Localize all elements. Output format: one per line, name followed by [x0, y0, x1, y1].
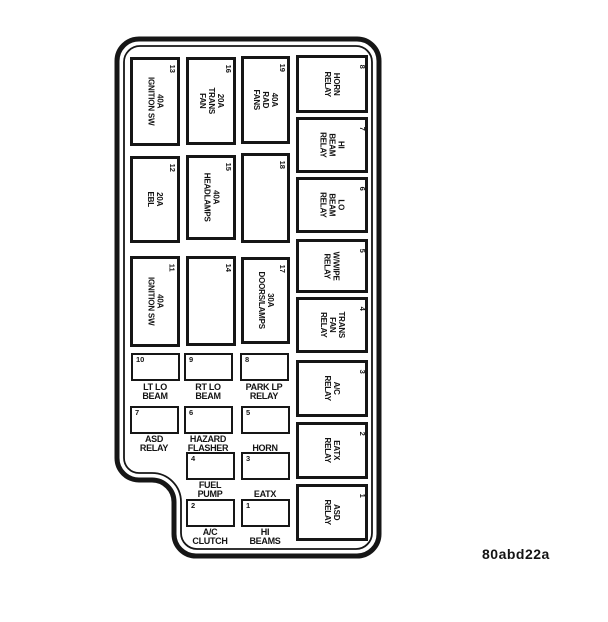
fuse-2: 2: [186, 499, 235, 527]
fuse-9: 9: [184, 353, 233, 381]
relay-lo-beam: 6 LO BEAM RELAY: [296, 177, 368, 233]
fuse-1: 1: [241, 499, 290, 527]
fuse-11: 11 40A IGNITION SW: [130, 256, 180, 347]
fuse-17: 17 30A DOORS/LAMPS: [241, 257, 290, 344]
fuse-label: 30A DOORS/LAMPS: [256, 272, 274, 329]
relay-label: EATX RELAY: [323, 438, 341, 463]
relay-label: ASD RELAY: [323, 500, 341, 525]
fuse-caption: PARK LP RELAY: [233, 382, 295, 401]
fuse-8: 8: [240, 353, 289, 381]
relay-ac: 3 A/C RELAY: [296, 360, 368, 417]
fuse-caption: ASD RELAY: [123, 434, 185, 453]
fuse-18: 18: [241, 153, 290, 243]
fuse-label: 20A EBL: [146, 192, 164, 207]
fuse-14: 14: [186, 256, 236, 346]
fuse-15: 15 40A HEADLAMPS: [186, 155, 236, 240]
fuse-caption: FUEL PUMP: [179, 480, 241, 499]
fuse-caption: A/C CLUTCH: [179, 527, 241, 546]
fuse-6: 6: [184, 406, 233, 434]
figure-code: 80abd22a: [482, 546, 550, 562]
fuse-caption: HORN: [234, 434, 296, 453]
fuse-number: 1: [246, 502, 250, 510]
fuse-caption: RT LO BEAM: [177, 382, 239, 401]
fuse-number: 2: [191, 502, 195, 510]
fuse-13: 13 40A IGNITION SW: [130, 57, 180, 146]
fuse-label: 20A TRANS FAN: [197, 88, 225, 115]
relay-label: LO BEAM RELAY: [318, 192, 346, 217]
fuse-label: 40A IGNITION SW: [146, 77, 164, 125]
fuse-number: 6: [189, 409, 193, 417]
fuse-12: 12 20A EBL: [130, 156, 180, 243]
relay-label: HORN RELAY: [323, 71, 341, 96]
fuse-caption: HAZARD FLASHER: [177, 434, 239, 453]
fuse-number: 9: [189, 356, 193, 364]
fuse-5: 5: [241, 406, 290, 434]
relay-label: TRANS FAN RELAY: [318, 312, 346, 339]
fuse-3: 3: [241, 452, 290, 480]
relay-asd: 1 ASD RELAY: [296, 484, 368, 541]
fuse-19: 19 40A RAD FANS: [241, 56, 290, 144]
fuse-number: 3: [246, 455, 250, 463]
fuse-box-diagram: 13 40A IGNITION SW 16 20A TRANS FAN 19 4…: [0, 0, 608, 622]
fuse-label: 40A IGNITION SW: [146, 277, 164, 325]
relay-wipe: 5 W/WIPE RELAY: [296, 239, 368, 293]
fuse-caption: HI BEAMS: [234, 527, 296, 546]
relay-hi-beam: 7 HI BEAM RELAY: [296, 117, 368, 173]
fuse-label: 40A HEADLAMPS: [202, 173, 220, 222]
fuse-16: 16 20A TRANS FAN: [186, 57, 236, 145]
fuse-number: 4: [191, 455, 195, 463]
relay-horn: 8 HORN RELAY: [296, 55, 368, 113]
fuse-7: 7: [130, 406, 179, 434]
relay-label: W/WIPE RELAY: [323, 251, 341, 280]
fuse-number: 10: [136, 356, 144, 364]
fuse-number: 7: [135, 409, 139, 417]
fuse-4: 4: [186, 452, 235, 480]
fuse-number: 8: [245, 356, 249, 364]
relay-label: A/C RELAY: [323, 376, 341, 401]
relay-trans-fan: 4 TRANS FAN RELAY: [296, 297, 368, 353]
fuse-10: 10: [131, 353, 180, 381]
relay-eatx: 2 EATX RELAY: [296, 422, 368, 479]
fuse-label: 40A RAD FANS: [252, 90, 280, 111]
fuse-number: 5: [246, 409, 250, 417]
fuse-caption: EATX: [234, 480, 296, 499]
relay-label: HI BEAM RELAY: [318, 132, 346, 157]
